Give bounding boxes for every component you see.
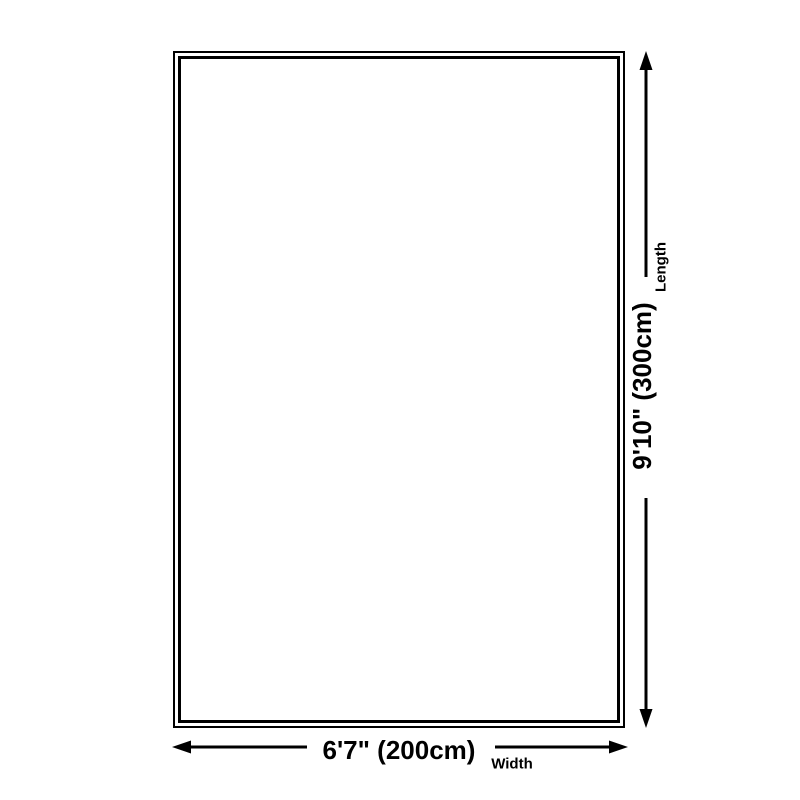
length-value-label: 9'10" (300cm) bbox=[629, 302, 655, 469]
arrow-down-icon bbox=[640, 709, 653, 728]
width-axis-label: Width bbox=[491, 757, 533, 772]
rug-rectangle-outer-border bbox=[173, 51, 625, 728]
width-value-label: 6'7" (200cm) bbox=[323, 737, 476, 763]
arrow-up-icon bbox=[640, 51, 653, 70]
arrow-right-icon bbox=[609, 741, 628, 754]
rug-size-diagram: 9'10" (300cm) Length 6'7" (200cm) Width bbox=[0, 0, 800, 800]
arrow-left-icon bbox=[172, 741, 191, 754]
length-axis-label: Length bbox=[654, 242, 669, 292]
rug-rectangle-inner-border bbox=[178, 56, 620, 723]
